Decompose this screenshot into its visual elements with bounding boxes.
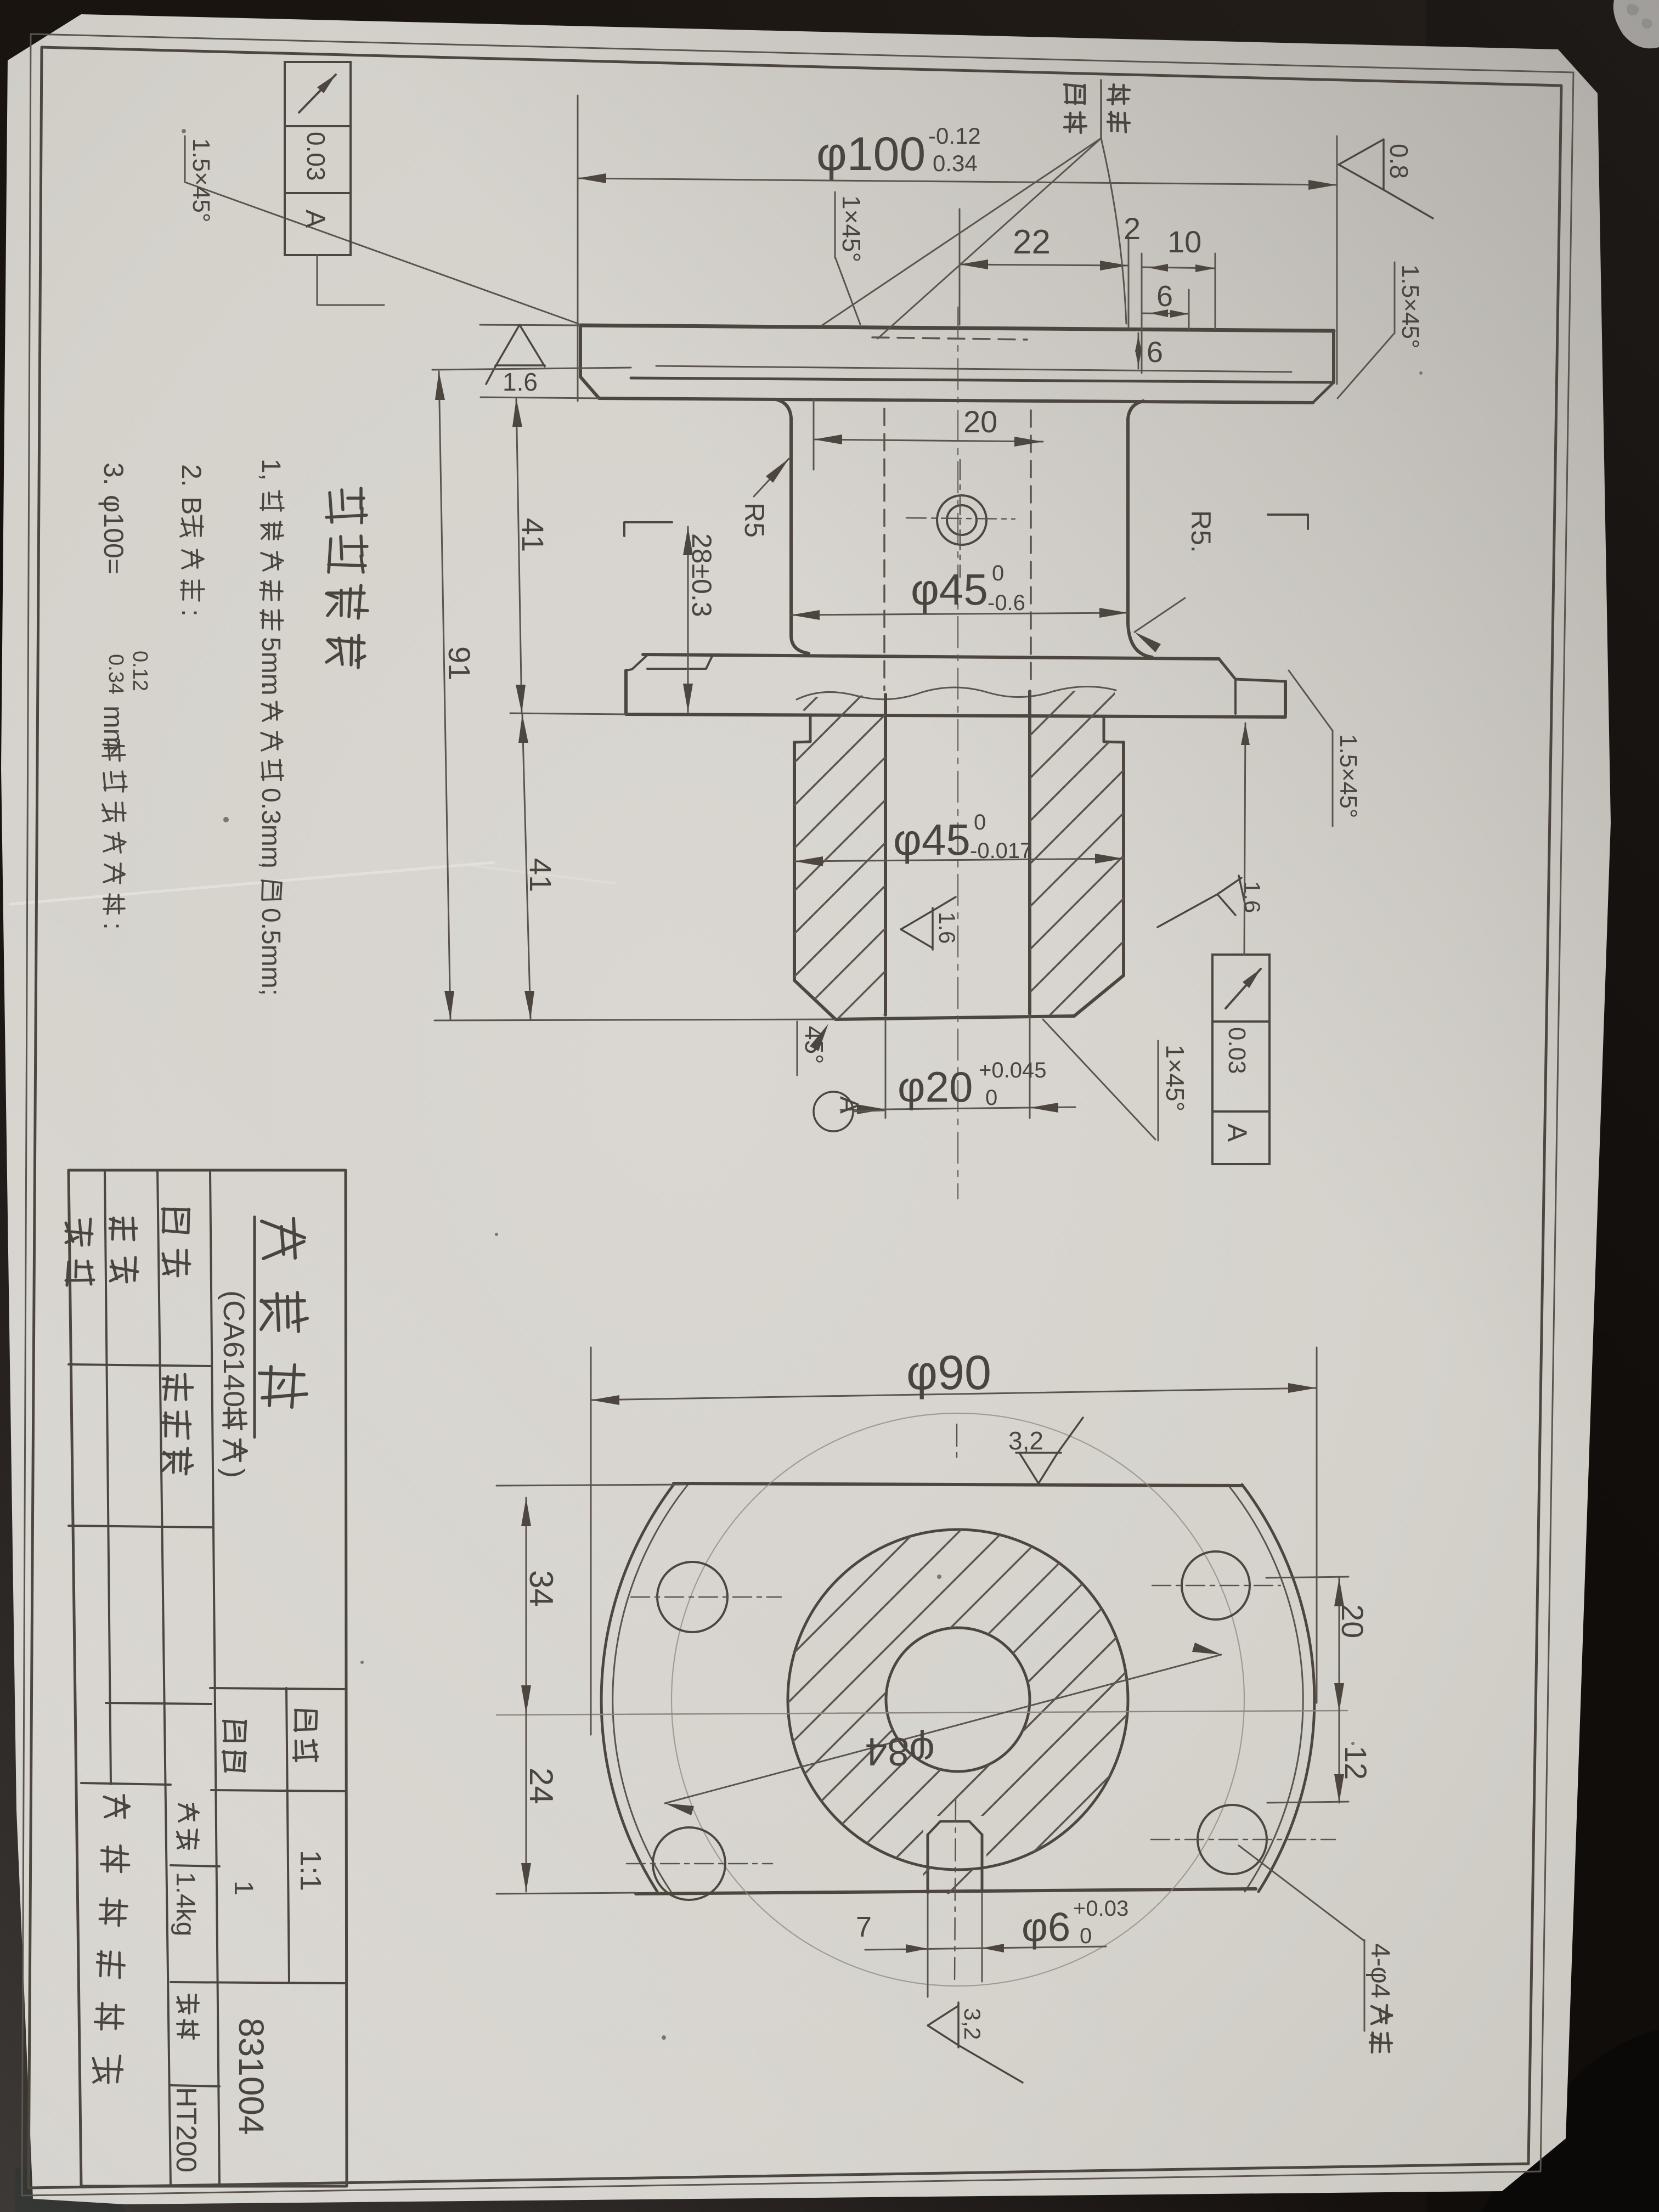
svg-text:1×45°: 1×45° <box>837 195 866 262</box>
svg-text:0.5mm;: 0.5mm; <box>256 908 285 996</box>
svg-text:0: 0 <box>1080 1924 1092 1948</box>
svg-text:45°: 45° <box>800 1026 828 1064</box>
svg-text:28±0.3: 28±0.3 <box>686 533 717 617</box>
svg-text:0.03: 0.03 <box>302 132 330 181</box>
svg-text:12: 12 <box>1339 1746 1373 1780</box>
svg-text:1.6: 1.6 <box>1239 881 1265 913</box>
svg-text:φ45: φ45 <box>893 815 970 864</box>
svg-text:φ45: φ45 <box>911 565 988 614</box>
svg-text:-0.12: -0.12 <box>928 123 981 149</box>
svg-text::: : <box>176 609 207 617</box>
svg-text:1×45°: 1×45° <box>1161 1045 1189 1111</box>
svg-text:1.4kg: 1.4kg <box>171 1872 200 1936</box>
svg-text:20: 20 <box>1335 1604 1370 1638</box>
svg-text:0.8: 0.8 <box>1385 144 1413 179</box>
svg-text:6: 6 <box>1156 280 1173 313</box>
svg-text:0.34: 0.34 <box>933 150 978 176</box>
svg-text:1.6: 1.6 <box>503 368 538 396</box>
svg-text:6: 6 <box>1147 336 1163 369</box>
svg-text:22: 22 <box>1013 223 1051 261</box>
svg-text:,: , <box>256 861 285 868</box>
svg-text:-0.017: -0.017 <box>970 839 1032 863</box>
svg-text:+0.045: +0.045 <box>979 1058 1046 1082</box>
svg-text:3,2: 3,2 <box>960 2008 985 2040</box>
svg-text:10: 10 <box>1167 224 1201 259</box>
svg-text:-0.6: -0.6 <box>988 591 1025 615</box>
svg-text:0.34: 0.34 <box>104 654 127 695</box>
svg-text:41: 41 <box>516 518 550 552</box>
svg-text:A: A <box>834 1096 864 1114</box>
svg-text:.: . <box>256 682 285 690</box>
svg-text:(CA6140: (CA6140 <box>217 1290 250 1407</box>
svg-text:φ100: φ100 <box>816 128 926 180</box>
svg-text:φ20: φ20 <box>898 1063 973 1111</box>
svg-text:A: A <box>300 210 331 228</box>
svg-text:B: B <box>176 496 207 515</box>
svg-text:2.: 2. <box>176 464 207 487</box>
svg-text:1: 1 <box>229 1881 258 1895</box>
svg-text:1.5×45°: 1.5×45° <box>1397 264 1424 348</box>
svg-text:20: 20 <box>963 404 997 439</box>
svg-text::: : <box>98 922 129 930</box>
svg-text:34: 34 <box>523 1570 560 1607</box>
svg-text:41: 41 <box>523 858 558 892</box>
svg-text:831004: 831004 <box>232 2018 271 2135</box>
svg-text:φ90: φ90 <box>906 1345 991 1400</box>
svg-text:4-φ4: 4-φ4 <box>1365 1943 1395 1999</box>
svg-text:+0.03: +0.03 <box>1073 1897 1128 1921</box>
svg-text:24: 24 <box>523 1768 560 1804</box>
svg-text:0: 0 <box>985 1086 997 1110</box>
svg-text:0.03: 0.03 <box>1223 1027 1250 1074</box>
svg-text:0.12: 0.12 <box>128 651 151 691</box>
svg-text:φ84: φ84 <box>865 1729 935 1773</box>
svg-text:φ100=: φ100= <box>98 495 129 574</box>
svg-text:1.6: 1.6 <box>934 912 960 944</box>
svg-text:1.5×45°: 1.5×45° <box>1335 734 1362 818</box>
svg-text:1,: 1, <box>256 459 285 481</box>
svg-text:HT200: HT200 <box>170 2087 202 2172</box>
svg-text:1.5×45°: 1.5×45° <box>188 138 215 222</box>
svg-text:A: A <box>1222 1124 1252 1142</box>
svg-text:91: 91 <box>442 646 477 680</box>
svg-text:φ6: φ6 <box>1022 1904 1070 1950</box>
svg-text:0: 0 <box>974 810 986 834</box>
svg-text:7: 7 <box>856 1911 872 1943</box>
svg-text:R5.: R5. <box>1186 510 1216 553</box>
svg-text:0.3mm: 0.3mm <box>256 788 285 868</box>
svg-text:R5: R5 <box>739 503 770 538</box>
svg-text:2: 2 <box>1124 211 1141 246</box>
svg-text:): ) <box>217 1468 250 1478</box>
svg-text:3.: 3. <box>98 462 129 486</box>
svg-text:1:1: 1:1 <box>294 1850 327 1891</box>
svg-text:0: 0 <box>992 561 1004 585</box>
svg-text:3,2: 3,2 <box>1008 1426 1043 1455</box>
